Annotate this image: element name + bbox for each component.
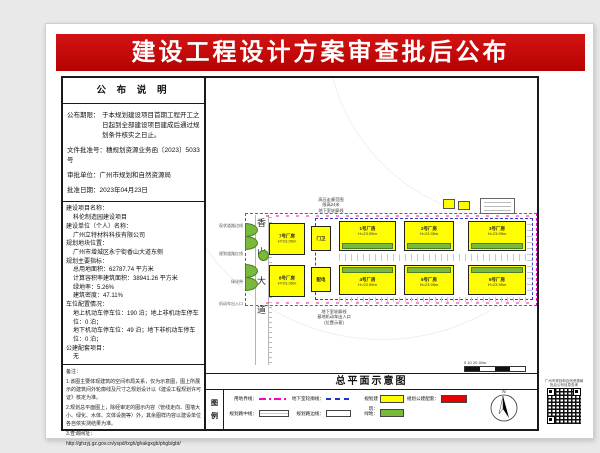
parking-column-east xyxy=(527,224,532,296)
query-url: http://ghzyj.gz.gov.cn/yspd/txgh/ghakgxg… xyxy=(66,440,201,448)
parking-label: 车位配置情况： xyxy=(66,301,201,310)
legend-label-basement-outline: 地下室轮廓线： xyxy=(290,394,324,404)
building-factory-2: 2号厂房H=23.95m xyxy=(404,221,454,251)
legend-bar: 图 例 用地界线： 地下室轮廓线： 规划建筑： 规划公建配套： 规划路中线： 规… xyxy=(206,389,537,429)
document-sheet: 建设工程设计方案审查批后公布 公 布 说 明 公布期限： 于本规划建设项目首期工… xyxy=(45,23,594,439)
building-gatehouse: 门卫 xyxy=(311,226,331,251)
north-label: N xyxy=(502,389,505,394)
remark-item-3: 3.查询网址： xyxy=(66,430,201,438)
legend-symbol-basement-outline xyxy=(326,398,351,400)
owner-label: 建设单位（个人）名称： xyxy=(66,223,201,232)
green-strip xyxy=(407,243,451,249)
green-strip xyxy=(407,267,451,273)
approval-authority: 审批单位：广州市规划和自然资源局 xyxy=(67,171,200,181)
legend-symbol-site-boundary xyxy=(259,398,289,400)
remark-item-1: 1.该图主要体现建筑的空间布局关系，仅为示意图，图上所展示的建筑间外轮廓线及尺寸… xyxy=(66,378,201,402)
notice-deadline: 公布期限： 于本规划建设项目首期工程开工之日起到全部建设项目建成后通过规划条件核… xyxy=(67,111,200,141)
legend-symbol-public-facility xyxy=(441,395,467,403)
legend-header: 图 例 xyxy=(206,390,224,429)
legend-label-green-space: 绿地： xyxy=(356,409,378,419)
dimension-ticks-top xyxy=(266,215,534,217)
high-voltage-corridor-note: 高压走廊范围限高24米地下室轮廓线 xyxy=(300,197,362,213)
remarks-header: 备注： xyxy=(66,368,201,376)
green-strip xyxy=(471,243,523,249)
green-rate: 绿地率：5.26% xyxy=(66,284,201,293)
side-annotation: 规划道路红线 xyxy=(206,252,243,257)
scale-labels: 0 10 20 40m xyxy=(464,360,526,365)
content-table: 公 布 说 明 公布期限： 于本规划建设项目首期工程开工之日起到全部建设项目建成… xyxy=(61,76,539,431)
north-arrow: N xyxy=(489,388,519,429)
location-label: 规划地块位置： xyxy=(66,240,201,249)
remarks-section: 备注： 1.该图主要体现建筑的空间布局关系，仅为示意图，图上所展示的建筑间外轮廓… xyxy=(63,364,204,453)
existing-building-block xyxy=(443,199,455,209)
location-value: 广州市增城区永宁街香山大道东侧 xyxy=(66,249,201,258)
building-factory-4: 4号厂房H=23.95m xyxy=(339,265,396,295)
legend-label-planned-building: 规划建筑： xyxy=(356,394,378,404)
building-factory-3: 3号厂房H=23.95m xyxy=(468,221,526,251)
scale-bar-segments xyxy=(464,366,526,372)
doc-number: 文件批准号：穗规划资源业务函〔2023〕5033 号 xyxy=(67,146,200,166)
building-factory-7: 7号厂房H=23.95m xyxy=(269,223,305,255)
approval-date: 批准日期：2023年04月23日 xyxy=(67,186,200,196)
side-annotation: 现状道路边线 xyxy=(206,224,243,229)
stamp-box xyxy=(480,198,515,214)
building-substation: 配电 xyxy=(311,267,331,292)
legend-label-site-boundary: 用地界线： xyxy=(227,394,257,404)
project-info-section: 建设项目名称： 科伦制造园建设项目 建设单位（个人）名称： 广州立特材料科技有限… xyxy=(63,201,204,364)
green-strip xyxy=(471,267,523,273)
project-name: 科伦制造园建设项目 xyxy=(66,214,201,223)
notice-header: 公 布 说 明 xyxy=(63,78,204,104)
building-factory-1: 1号厂房H=23.95m xyxy=(339,221,396,251)
info-panel: 公 布 说 明 公布期限： 于本规划建设项目首期工程开工之日起到全部建设项目建成… xyxy=(63,78,206,429)
parking-aisle xyxy=(339,254,526,261)
qr-finder-icon xyxy=(573,388,581,396)
project-name-label: 建设项目名称： xyxy=(66,205,201,214)
side-annotation: 绿化带 xyxy=(206,280,243,285)
legend-label-road-centerline: 规划路中线： xyxy=(224,409,257,419)
qr-finder-icon xyxy=(547,416,555,424)
legend-symbol-road-edge xyxy=(326,410,351,417)
building-factory-5: 5号厂房H=23.95m xyxy=(404,265,454,295)
dimension-ticks-bottom xyxy=(266,302,534,304)
building-factory-6: 6号厂房H=23.95m xyxy=(468,265,526,295)
notice-section: 公布期限： 于本规划建设项目首期工程开工之日起到全部建设项目建成后通过规划条件核… xyxy=(63,104,204,201)
qr-caption: 广州市规划和自然资源局 批后公布信息查询 xyxy=(538,379,590,388)
scale-bar: 0 10 20 40m xyxy=(464,360,526,372)
green-strip xyxy=(342,267,393,273)
plan-caption: 总平面示意图 xyxy=(206,373,537,389)
parking-aisle xyxy=(339,297,526,302)
public-facility-value: 无 xyxy=(66,353,201,362)
density: 建筑密度：47.11% xyxy=(66,292,201,301)
indicators-label: 规划主要指标： xyxy=(66,258,201,267)
remark-item-2: 2.规划总平面图上，除经审定的图示内容（管线走向、围墙大小、绿化、水体、文体设施… xyxy=(66,404,201,428)
deadline-label: 公布期限： xyxy=(67,111,102,141)
basement-outline-note: 地下室轮廓线基地机动车出入口(位置示意) xyxy=(303,309,365,325)
floor-area: 计算容积率建筑面积：38941.26 平方米 xyxy=(66,275,201,284)
building-factory-8: 8号厂房H=23.95m xyxy=(269,265,305,297)
existing-building-block xyxy=(458,201,470,210)
site-plan: 香山大道 1号厂房H=23.95m 2号厂房H=23.95m 3号厂房H=23.… xyxy=(206,78,537,373)
road-name-label: 香山大道 xyxy=(257,218,268,353)
green-circle xyxy=(258,250,269,261)
legend-symbol-green-space xyxy=(380,409,404,417)
public-facility-label: 公建配套项目： xyxy=(66,345,201,354)
legend-symbol-road-centerline xyxy=(259,410,289,417)
land-area: 总用地面积：62787.74 平方米 xyxy=(66,266,201,275)
green-strip xyxy=(342,243,393,249)
page-title: 建设工程设计方案审查批后公布 xyxy=(56,34,585,71)
parking-underground: 地下机动车停车位：49 泊；地下非机动车停车位：0 泊； xyxy=(66,327,201,344)
legend-label-public-facility: 规划公建配套： xyxy=(406,394,439,404)
owner-name: 广州立特材料科技有限公司 xyxy=(66,232,201,241)
side-annotation: 机动车出入口 xyxy=(206,302,243,307)
qr-code xyxy=(547,388,581,424)
qr-finder-icon xyxy=(547,388,555,396)
deadline-text: 于本规划建设项目首期工程开工之日起到全部建设项目建成后通过规划条件核实之日止。 xyxy=(102,111,200,141)
legend-label-road-edge: 规划路边线： xyxy=(290,409,324,419)
parking-ground: 地上机动车停车位：190 泊；地上非机动车停车位：0 泊； xyxy=(66,310,201,327)
legend-symbol-planned-building xyxy=(380,395,404,403)
